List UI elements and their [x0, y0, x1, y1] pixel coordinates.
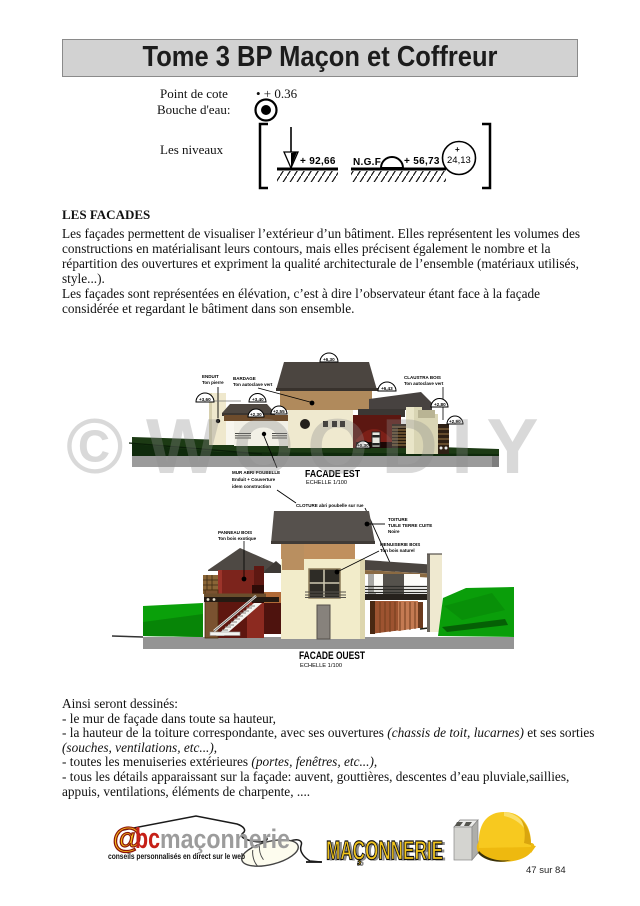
svg-text:Noire: Noire [388, 529, 400, 534]
svg-text:N.G.F: N.G.F [353, 157, 381, 168]
svg-text:MENUISERIE BOIS: MENUISERIE BOIS [380, 542, 420, 547]
svg-text:+ 56,73: + 56,73 [404, 156, 440, 167]
svg-text:+: + [455, 145, 460, 154]
svg-text:ECHELLE 1/100: ECHELLE 1/100 [300, 663, 342, 669]
svg-text:PANNEAU BOIS: PANNEAU BOIS [218, 530, 252, 535]
svg-text:Ton bois exotique: Ton bois exotique [218, 536, 257, 541]
svg-text:MAÇONNERIE: MAÇONNERIE [326, 836, 443, 866]
svg-text:Ton autoclave vert: Ton autoclave vert [404, 381, 444, 386]
svg-text:24,13: 24,13 [447, 155, 471, 166]
svg-text:+6,43: +6,43 [381, 386, 393, 391]
svg-text:Ton autoclave vert: Ton autoclave vert [233, 382, 273, 387]
svg-text:maçonnerie: maçonnerie [160, 824, 290, 854]
svg-text:FACADE OUEST: FACADE OUEST [299, 650, 365, 662]
svg-text:conseils personnalisés en dire: conseils personnalisés en direct sur le … [108, 851, 245, 861]
svg-text:CLOTURE abri poubelle sur rue: CLOTURE abri poubelle sur rue [296, 503, 364, 508]
svg-text:TUILE TERRE CUITE: TUILE TERRE CUITE [388, 523, 432, 528]
svg-text:+ 92,66: + 92,66 [300, 156, 336, 167]
svg-text:ENDUIT: ENDUIT [202, 374, 219, 379]
svg-text:TOITURE: TOITURE [388, 517, 408, 522]
svg-text:BARDAGE: BARDAGE [233, 376, 256, 381]
svg-text:CLAUSTRA BOIS: CLAUSTRA BOIS [404, 375, 441, 380]
svg-text:Ton pierre: Ton pierre [202, 380, 224, 385]
svg-text:+6,30: +6,30 [323, 357, 335, 362]
svg-text:©: © [66, 402, 123, 490]
svg-text:WOODIY: WOODIY [146, 402, 552, 490]
svg-text:Ton bois naturel: Ton bois naturel [380, 548, 415, 553]
